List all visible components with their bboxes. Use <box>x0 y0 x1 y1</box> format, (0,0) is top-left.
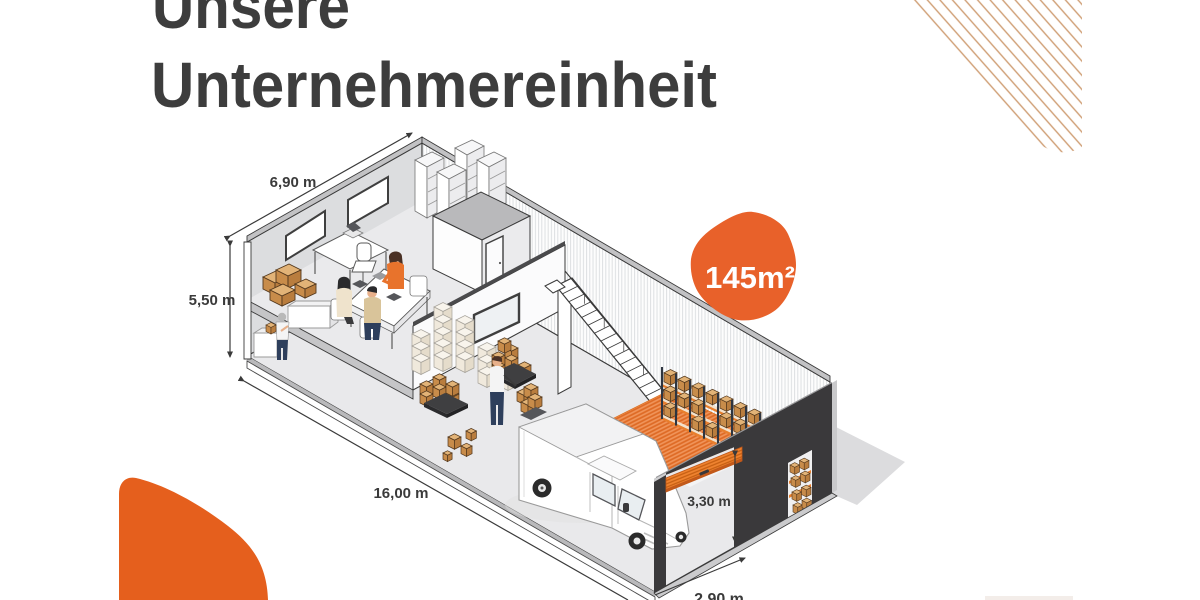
svg-text:3,30 m: 3,30 m <box>687 493 731 509</box>
svg-text:Unsere: Unsere <box>152 0 350 42</box>
svg-text:2,90 m: 2,90 m <box>694 591 744 600</box>
svg-text:16,00 m: 16,00 m <box>373 485 428 502</box>
svg-text:145m²: 145m² <box>705 260 795 295</box>
svg-text:5,50 m: 5,50 m <box>189 292 236 309</box>
svg-text:Unternehmereinheit: Unternehmereinheit <box>151 49 717 121</box>
svg-text:6,90 m: 6,90 m <box>270 174 317 191</box>
